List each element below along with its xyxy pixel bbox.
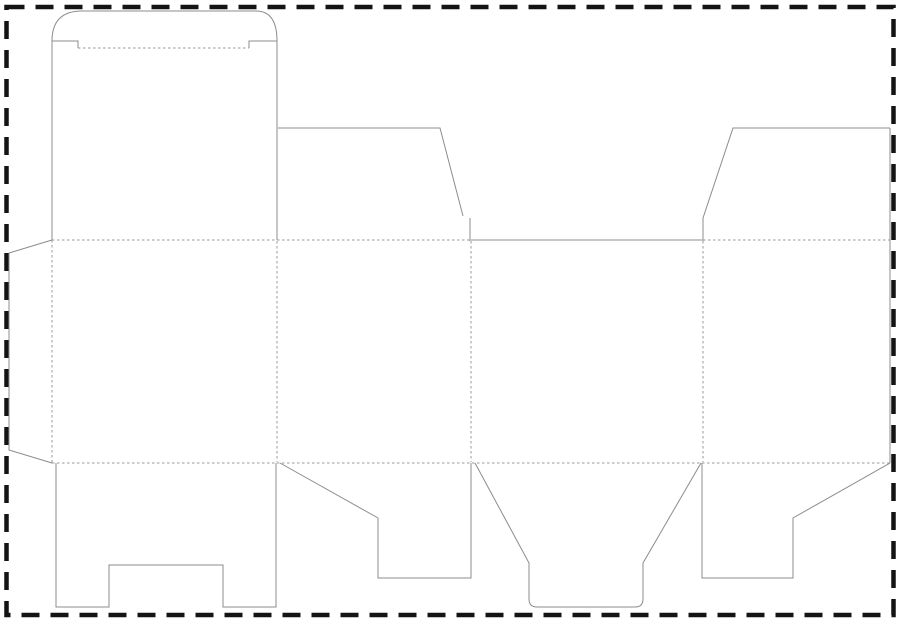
bottom-flap2-outline-cut-line — [280, 463, 471, 578]
top-flap4-edge-cut-line — [703, 128, 890, 218]
lid-outline-cut-line — [52, 11, 277, 41]
dieline-page — [0, 0, 900, 627]
sheet-border — [7, 7, 894, 615]
dieline-svg — [0, 0, 900, 627]
bottom-flap4-outline-cut-line — [702, 463, 890, 578]
lid-right-shoulder-cut-line — [249, 41, 277, 48]
bottom-tuck-flap-outline-cut-line — [475, 463, 701, 607]
top-flap2-edge-cut-line — [278, 128, 463, 216]
lid-left-shoulder-cut-line — [52, 41, 78, 48]
bottom-flap1-outline-cut-line — [56, 463, 276, 607]
glue-flap-outline-cut-line — [9, 240, 52, 463]
